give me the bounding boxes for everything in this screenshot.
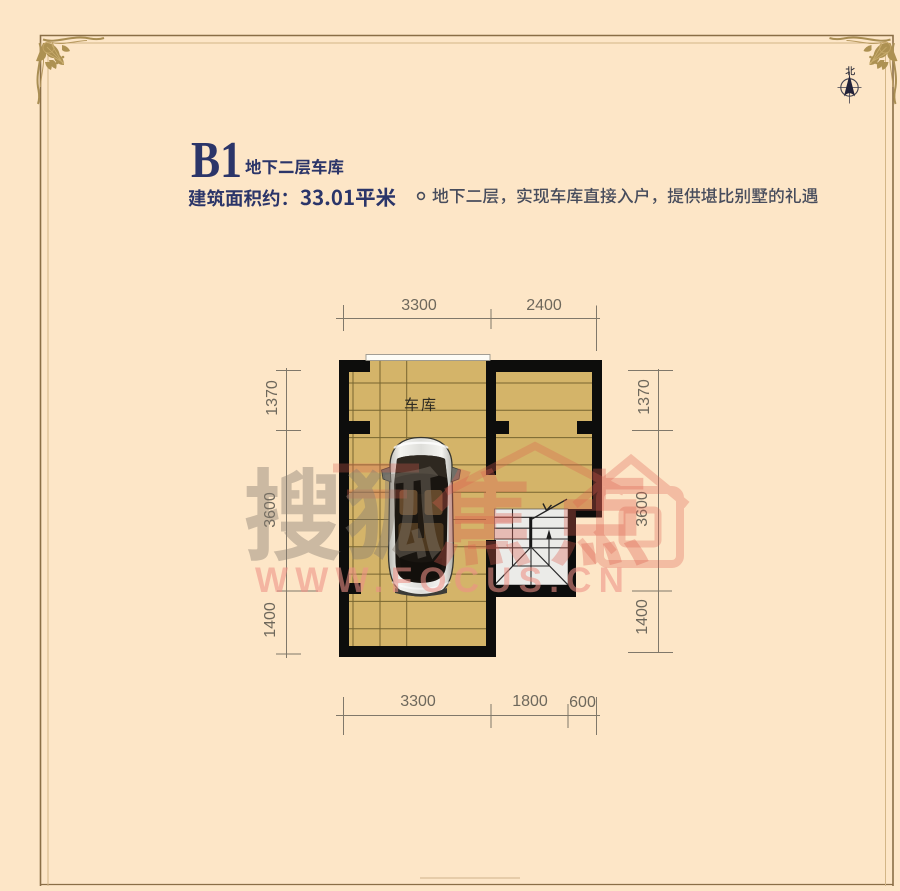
- svg-text:2400: 2400: [526, 297, 562, 314]
- svg-text:1370: 1370: [636, 379, 653, 415]
- svg-text:3300: 3300: [400, 693, 436, 710]
- svg-text:1400: 1400: [262, 602, 279, 638]
- svg-text:600: 600: [569, 694, 596, 711]
- svg-text:WWW.FOCUS.CN: WWW.FOCUS.CN: [255, 561, 631, 600]
- svg-text:1400: 1400: [634, 599, 651, 635]
- svg-text:1800: 1800: [512, 693, 548, 710]
- svg-text:3300: 3300: [401, 297, 437, 314]
- svg-text:1370: 1370: [264, 380, 281, 416]
- svg-text:B1: B1: [191, 132, 242, 189]
